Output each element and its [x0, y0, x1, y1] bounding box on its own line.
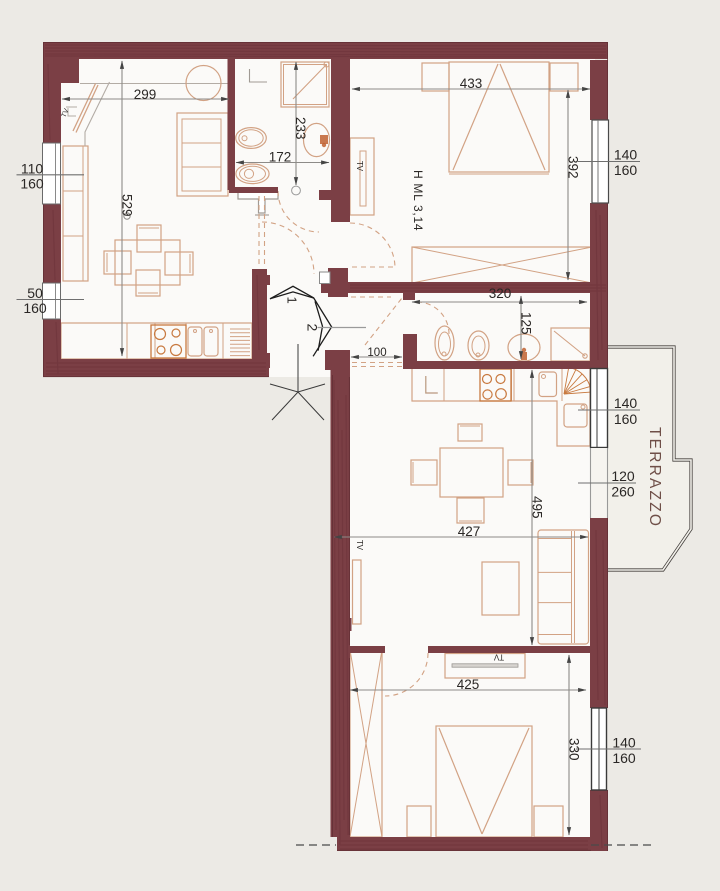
svg-text:TV: TV — [355, 540, 364, 551]
svg-text:320: 320 — [489, 286, 512, 301]
svg-text:110: 110 — [21, 161, 44, 177]
svg-text:125: 125 — [518, 312, 533, 335]
svg-text:140: 140 — [614, 147, 638, 163]
svg-text:427: 427 — [458, 524, 481, 539]
svg-text:140: 140 — [612, 735, 636, 751]
svg-text:529: 529 — [119, 194, 134, 217]
svg-text:392: 392 — [566, 156, 581, 179]
svg-text:TV: TV — [493, 653, 504, 662]
svg-text:160: 160 — [614, 162, 638, 178]
svg-text:330: 330 — [566, 738, 581, 761]
svg-text:299: 299 — [134, 87, 157, 102]
svg-text:433: 433 — [460, 76, 483, 91]
svg-text:1: 1 — [285, 297, 300, 304]
svg-text:100: 100 — [367, 347, 386, 359]
svg-text:120: 120 — [611, 468, 635, 484]
svg-text:233: 233 — [293, 117, 308, 140]
svg-text:140: 140 — [614, 395, 638, 411]
svg-text:H ML 3,14: H ML 3,14 — [411, 170, 425, 231]
svg-text:172: 172 — [269, 150, 292, 165]
svg-text:160: 160 — [20, 176, 44, 192]
svg-text:160: 160 — [612, 750, 636, 766]
svg-text:160: 160 — [614, 411, 638, 427]
svg-text:50: 50 — [27, 285, 43, 301]
svg-text:260: 260 — [611, 484, 635, 500]
svg-text:2: 2 — [305, 324, 321, 332]
svg-text:TERRAZZO: TERRAZZO — [646, 427, 663, 528]
svg-text:160: 160 — [23, 300, 47, 316]
svg-text:495: 495 — [529, 496, 544, 519]
svg-text:425: 425 — [457, 677, 480, 692]
svg-text:TV: TV — [355, 161, 364, 172]
